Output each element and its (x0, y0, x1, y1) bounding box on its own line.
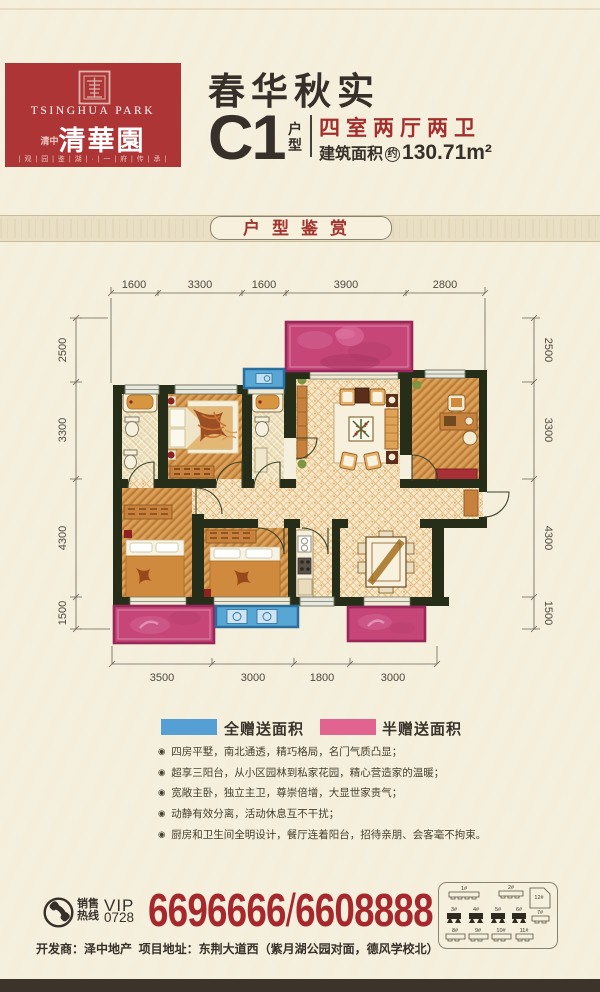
svg-text:2500: 2500 (57, 338, 69, 362)
svg-text:2500: 2500 (542, 338, 554, 362)
svg-text:3300: 3300 (188, 279, 212, 291)
svg-text:4#: 4# (473, 907, 480, 913)
svg-text:6#: 6# (516, 907, 523, 913)
svg-text:1800: 1800 (310, 672, 334, 684)
svg-text:4300: 4300 (542, 526, 554, 550)
svg-text:9#: 9# (475, 928, 482, 934)
svg-text:3#: 3# (451, 907, 458, 913)
svg-text:5#: 5# (495, 907, 502, 913)
svg-text:1500: 1500 (542, 601, 554, 625)
svg-text:11#: 11# (520, 928, 530, 934)
svg-text:3300: 3300 (542, 418, 554, 442)
svg-text:10#: 10# (496, 928, 506, 934)
svg-text:1600: 1600 (252, 279, 276, 291)
svg-text:1500: 1500 (57, 601, 69, 625)
svg-text:2800: 2800 (433, 279, 457, 291)
svg-text:3300: 3300 (57, 418, 69, 442)
svg-text:8#: 8# (452, 928, 459, 934)
svg-text:3000: 3000 (241, 672, 265, 684)
svg-text:3900: 3900 (334, 279, 358, 291)
svg-text:2#: 2# (508, 885, 515, 891)
svg-text:3500: 3500 (150, 672, 174, 684)
svg-text:7#: 7# (537, 910, 544, 916)
svg-text:1600: 1600 (122, 279, 146, 291)
svg-text:1#: 1# (461, 886, 468, 892)
svg-text:4300: 4300 (57, 526, 69, 550)
svg-text:12#: 12# (534, 895, 544, 901)
svg-text:3000: 3000 (381, 672, 405, 684)
